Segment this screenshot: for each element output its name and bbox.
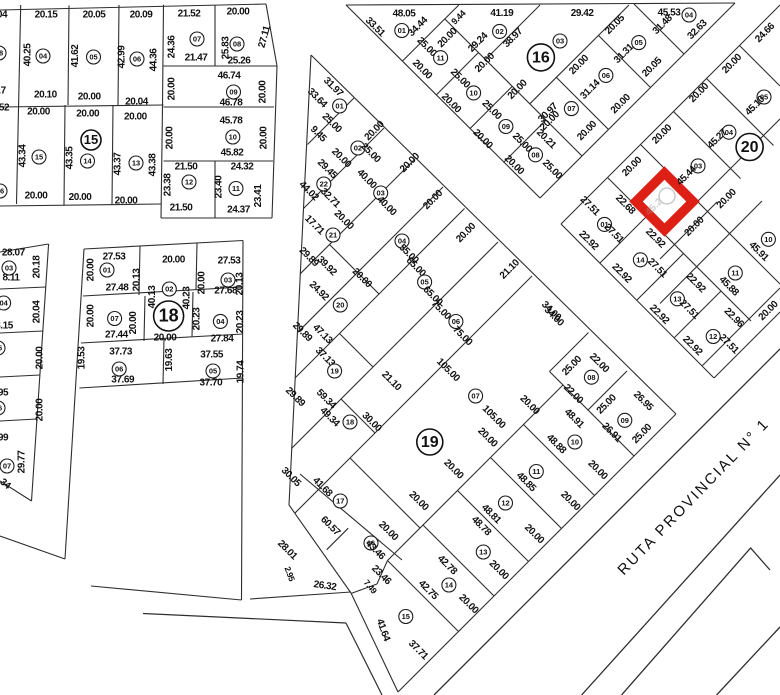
svg-text:41.19: 41.19 <box>490 8 514 19</box>
svg-text:05: 05 <box>635 38 643 47</box>
svg-text:20.00: 20.00 <box>162 255 186 266</box>
svg-text:07: 07 <box>567 104 575 113</box>
svg-text:01: 01 <box>103 266 111 275</box>
svg-text:20.00: 20.00 <box>258 80 269 104</box>
svg-text:13: 13 <box>132 159 140 168</box>
svg-text:04: 04 <box>685 11 694 20</box>
svg-text:06: 06 <box>115 365 123 374</box>
svg-text:20.00: 20.00 <box>69 192 93 203</box>
svg-text:48.05: 48.05 <box>393 9 417 20</box>
svg-text:27.53: 27.53 <box>103 252 127 263</box>
svg-text:37.55: 37.55 <box>200 350 224 361</box>
svg-text:52: 52 <box>0 103 10 114</box>
svg-text:37.70: 37.70 <box>200 378 224 389</box>
svg-text:18: 18 <box>159 306 179 326</box>
svg-text:23.40: 23.40 <box>214 175 225 199</box>
svg-text:16: 16 <box>532 49 550 66</box>
svg-text:41.62: 41.62 <box>70 44 81 68</box>
svg-text:20.00: 20.00 <box>86 258 97 282</box>
svg-text:15: 15 <box>402 612 410 621</box>
svg-text:24.32: 24.32 <box>231 162 255 173</box>
svg-text:04: 04 <box>0 299 9 308</box>
svg-text:24.37: 24.37 <box>227 205 251 216</box>
svg-text:29.77: 29.77 <box>17 450 28 474</box>
svg-text:20.00: 20.00 <box>115 196 139 207</box>
svg-text:12: 12 <box>501 499 509 508</box>
svg-text:13: 13 <box>479 548 487 557</box>
svg-text:20.09: 20.09 <box>130 10 154 21</box>
svg-text:01: 01 <box>335 102 343 111</box>
svg-text:08: 08 <box>531 150 539 159</box>
svg-text:20.13: 20.13 <box>131 268 142 292</box>
svg-text:20.05: 20.05 <box>83 10 107 21</box>
svg-text:14: 14 <box>83 157 92 166</box>
svg-text:10: 10 <box>229 133 237 142</box>
svg-text:20.00: 20.00 <box>227 7 251 18</box>
svg-text:12: 12 <box>709 332 717 341</box>
svg-text:20.23: 20.23 <box>235 310 246 334</box>
svg-text:27.84: 27.84 <box>211 334 235 345</box>
svg-text:06: 06 <box>0 404 2 413</box>
svg-text:19.63: 19.63 <box>164 348 175 372</box>
svg-text:16: 16 <box>0 187 4 196</box>
svg-text:40.25: 40.25 <box>23 43 34 67</box>
svg-text:37.69: 37.69 <box>111 375 135 386</box>
svg-text:19.74: 19.74 <box>236 360 247 384</box>
svg-text:20.00: 20.00 <box>86 304 97 328</box>
svg-text:08: 08 <box>0 49 3 58</box>
svg-text:10: 10 <box>469 88 477 97</box>
svg-text:06: 06 <box>602 71 610 80</box>
svg-text:20.00: 20.00 <box>196 271 207 295</box>
svg-text:11: 11 <box>731 269 739 278</box>
svg-text:20: 20 <box>741 139 759 156</box>
svg-text:20.23: 20.23 <box>191 307 202 331</box>
svg-text:08: 08 <box>233 40 241 49</box>
svg-text:09: 09 <box>621 416 629 425</box>
svg-text:20.00: 20.00 <box>259 126 270 150</box>
svg-text:07: 07 <box>471 392 479 401</box>
svg-text:46.74: 46.74 <box>218 71 242 82</box>
svg-text:20.00: 20.00 <box>76 109 100 120</box>
svg-text:24.36: 24.36 <box>167 35 178 59</box>
svg-text:27.44: 27.44 <box>105 330 129 341</box>
svg-text:07: 07 <box>110 314 118 323</box>
svg-text:17: 17 <box>336 497 344 506</box>
svg-text:04: 04 <box>39 52 48 61</box>
svg-text:08: 08 <box>587 373 595 382</box>
svg-text:07: 07 <box>193 35 201 44</box>
svg-text:42.99: 42.99 <box>117 45 128 69</box>
svg-text:8.11: 8.11 <box>2 273 20 284</box>
svg-text:21.50: 21.50 <box>170 203 194 214</box>
svg-text:05: 05 <box>89 53 97 62</box>
svg-text:20.10: 20.10 <box>34 90 58 101</box>
svg-text:10: 10 <box>571 438 579 447</box>
svg-text:11: 11 <box>232 184 240 193</box>
svg-text:09: 09 <box>229 88 237 97</box>
svg-text:20.00: 20.00 <box>154 333 178 344</box>
svg-text:14: 14 <box>636 255 645 264</box>
svg-text:40.13: 40.13 <box>147 285 158 309</box>
svg-text:20.04: 20.04 <box>32 300 43 324</box>
svg-text:25.26: 25.26 <box>228 56 252 67</box>
svg-text:20.15: 20.15 <box>35 10 59 21</box>
svg-text:28.07: 28.07 <box>2 248 26 259</box>
svg-text:06: 06 <box>133 55 141 64</box>
svg-text:8.15: 8.15 <box>0 321 14 332</box>
svg-text:46.78: 46.78 <box>220 98 244 109</box>
svg-text:03: 03 <box>224 276 232 285</box>
svg-text:21.50: 21.50 <box>175 162 199 173</box>
svg-text:01: 01 <box>398 26 406 35</box>
svg-text:21: 21 <box>329 231 337 240</box>
svg-text:03: 03 <box>5 264 13 273</box>
svg-text:23.41: 23.41 <box>253 184 264 208</box>
svg-text:11: 11 <box>437 53 445 62</box>
svg-text:20.00: 20.00 <box>35 398 46 422</box>
svg-text:02: 02 <box>495 27 503 36</box>
svg-text:02: 02 <box>165 285 173 294</box>
svg-text:07: 07 <box>3 462 11 471</box>
svg-text:21.52: 21.52 <box>178 9 202 20</box>
svg-text:11: 11 <box>532 467 540 476</box>
svg-text:45.78: 45.78 <box>220 116 244 127</box>
svg-text:10: 10 <box>764 235 772 244</box>
svg-text:37.73: 37.73 <box>109 347 133 358</box>
svg-text:43.35: 43.35 <box>65 146 76 170</box>
svg-text:05: 05 <box>0 344 2 353</box>
svg-text:23.38: 23.38 <box>163 173 174 197</box>
svg-text:20.00: 20.00 <box>35 346 46 370</box>
svg-text:05: 05 <box>209 367 217 376</box>
svg-text:20.00: 20.00 <box>25 191 49 202</box>
svg-text:04: 04 <box>0 10 8 21</box>
svg-text:20.18: 20.18 <box>31 255 42 279</box>
svg-text:27.48: 27.48 <box>106 283 130 294</box>
svg-text:20.13: 20.13 <box>235 272 246 296</box>
svg-text:27.53: 27.53 <box>218 256 242 267</box>
svg-text:20.00: 20.00 <box>78 92 102 103</box>
svg-text:43.34: 43.34 <box>18 144 29 168</box>
svg-text:15: 15 <box>84 132 98 147</box>
svg-text:12: 12 <box>185 178 193 187</box>
svg-text:43.38: 43.38 <box>148 153 159 177</box>
svg-text:14: 14 <box>445 581 454 590</box>
svg-text:20.00: 20.00 <box>27 107 51 118</box>
svg-text:20.00: 20.00 <box>165 126 176 150</box>
svg-text:20.00: 20.00 <box>128 311 139 335</box>
svg-text:15: 15 <box>35 153 43 162</box>
svg-text:03: 03 <box>556 37 564 46</box>
svg-text:29.42: 29.42 <box>571 8 595 19</box>
svg-text:04: 04 <box>216 317 225 326</box>
svg-text:.7: .7 <box>0 86 7 97</box>
svg-text:19: 19 <box>330 367 338 376</box>
svg-text:21.47: 21.47 <box>185 53 209 64</box>
svg-text:40.23: 40.23 <box>182 286 193 310</box>
svg-text:43.37: 43.37 <box>113 152 124 176</box>
svg-text:19: 19 <box>421 434 439 451</box>
svg-text:99: 99 <box>0 433 9 444</box>
svg-text:95: 95 <box>0 388 9 399</box>
svg-text:20: 20 <box>336 301 344 310</box>
svg-text:09: 09 <box>502 122 510 131</box>
svg-text:18: 18 <box>346 418 354 427</box>
svg-text:20.00: 20.00 <box>124 112 148 123</box>
svg-text:45.82: 45.82 <box>221 148 245 159</box>
svg-text:20.04: 20.04 <box>125 97 149 108</box>
svg-text:19.53: 19.53 <box>77 346 88 370</box>
svg-text:44.36: 44.36 <box>148 48 159 72</box>
svg-text:20.00: 20.00 <box>167 77 178 101</box>
